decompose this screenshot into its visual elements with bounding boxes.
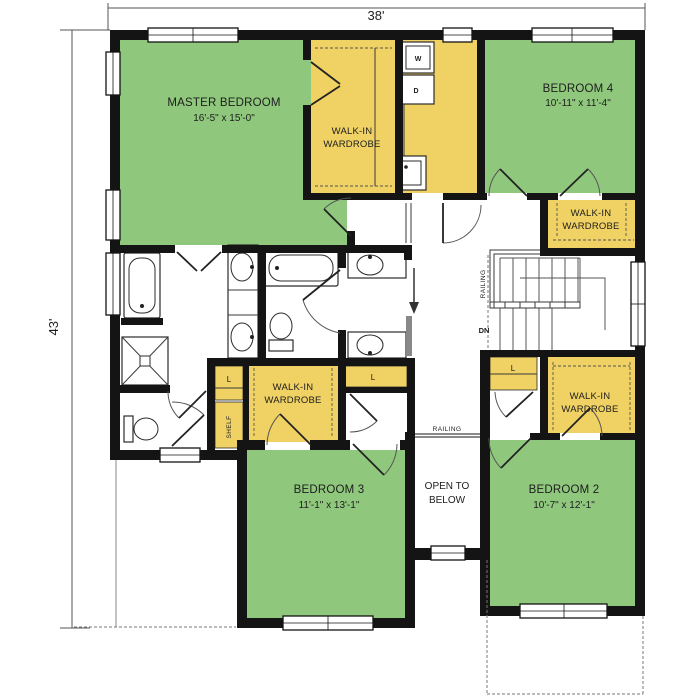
shelf-label: SHELF	[226, 416, 233, 439]
toilet-hall-bath	[269, 313, 293, 351]
stairs-down-label: DN	[479, 326, 490, 335]
washer-label: W	[415, 56, 422, 63]
door-vanity-area	[350, 394, 377, 432]
room-bedroom-2	[490, 440, 635, 606]
hall-partition	[406, 316, 412, 356]
window	[431, 546, 465, 560]
shower	[122, 337, 168, 385]
wardrobe-b2-line2: WARDROBE	[561, 404, 618, 415]
door-laundry	[443, 203, 481, 243]
toilet-master	[124, 416, 158, 442]
window	[106, 52, 120, 95]
bedroom4-size: 10'-11" x 11'-4"	[545, 98, 611, 109]
wardrobe-master-line2: WARDROBE	[323, 139, 380, 150]
open-to-below-line1: OPEN TO	[425, 481, 470, 492]
vanity-lower	[348, 332, 406, 358]
vanity-master	[228, 245, 258, 358]
dimension-height-label: 43'	[46, 319, 61, 336]
window	[443, 28, 472, 42]
open-below-railing-label: RAILING	[433, 426, 462, 433]
window	[283, 616, 373, 630]
dimension-width-label: 38'	[368, 8, 385, 23]
door-linen-right	[495, 392, 533, 417]
master-bathtub	[121, 253, 163, 325]
window	[160, 448, 200, 462]
dryer-label: D	[413, 88, 418, 95]
stair-railing-label: RAILING	[480, 270, 487, 299]
staircase	[488, 250, 605, 352]
wardrobe-b4-line1: WALK-IN	[571, 208, 612, 219]
stair-railing	[488, 250, 580, 350]
bedroom3-size: 11'-1" x 13'-1"	[299, 500, 360, 511]
wardrobe-master-line1: WALK-IN	[332, 126, 373, 137]
window	[631, 262, 645, 346]
window	[148, 28, 238, 42]
wardrobe-b3-line1: WALK-IN	[273, 382, 314, 393]
window	[520, 604, 607, 618]
room-bedroom-3	[247, 450, 405, 618]
wardrobe-b4-line2: WARDROBE	[562, 221, 619, 232]
bedroom2-name: BEDROOM 2	[529, 484, 600, 496]
linen-mid-label: L	[371, 373, 376, 382]
open-below-railing	[415, 434, 480, 437]
bedroom4-name: BEDROOM 4	[543, 83, 614, 95]
window	[532, 28, 613, 42]
window	[106, 190, 120, 240]
open-to-below-line2: BELOW	[429, 495, 466, 506]
bedroom3-name: BEDROOM 3	[294, 484, 365, 496]
master-bedroom-size: 16'-5" x 15'-0"	[193, 113, 255, 124]
direction-arrow	[409, 268, 419, 314]
floor-plan: 38' 43' MASTER BEDROOM 16'-5" x 15'-0" B…	[0, 0, 700, 700]
vanity-upper	[348, 252, 406, 278]
wardrobe-b2-line1: WALK-IN	[570, 391, 611, 402]
bedroom2-size: 10'-7" x 12'-1"	[533, 500, 595, 511]
window	[106, 253, 120, 315]
wardrobe-b3-line2: WARDROBE	[264, 395, 321, 406]
room-bedroom-4	[485, 40, 635, 193]
room-master-wardrobe	[311, 40, 395, 193]
door-master-bath-double	[177, 252, 221, 271]
linen-right-label: L	[511, 364, 516, 373]
linen-left-label: L	[227, 375, 232, 384]
master-bedroom-name: MASTER BEDROOM	[167, 97, 280, 109]
room-areas	[120, 40, 635, 618]
